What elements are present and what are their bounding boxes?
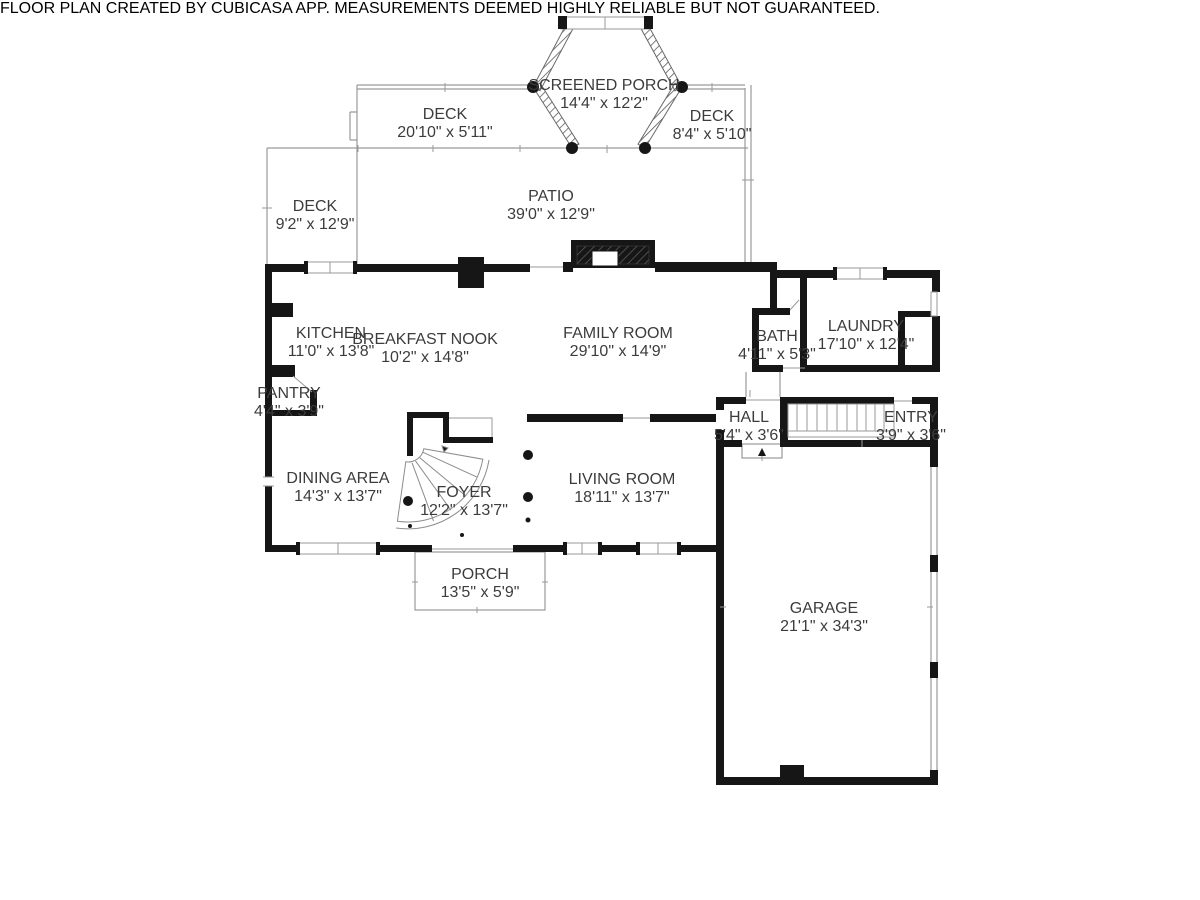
screened-porch-window xyxy=(558,16,653,29)
room-label-dining-area: DINING AREA14'3" x 13'7" xyxy=(286,470,389,506)
room-label-screened-porch: SCREENED PORCH14'4" x 12'2" xyxy=(528,77,679,113)
room-label-entry: ENTRY3'9" x 3'6" xyxy=(876,409,946,445)
room-label-patio: PATIO39'0" x 12'9" xyxy=(507,188,595,224)
stoop-arrow xyxy=(758,448,766,461)
kitchen-window xyxy=(304,261,357,274)
laundry-window xyxy=(833,267,887,280)
room-label-foyer: FOYER12'2" x 13'7" xyxy=(420,484,508,520)
living-window-1 xyxy=(563,542,602,555)
room-label-breakfast-nook: BREAKFAST NOOK10'2" x 14'8" xyxy=(352,331,498,367)
room-label-hall: HALL5'4" x 3'6" xyxy=(714,409,784,445)
living-window-2 xyxy=(636,542,681,555)
floor-plan: SCREENED PORCH14'4" x 12'2" DECK20'10" x… xyxy=(0,0,1200,900)
closet-outlines xyxy=(449,418,492,437)
floor-plan-drawing xyxy=(0,0,1200,900)
dining-window xyxy=(296,542,380,555)
room-label-laundry: LAUNDRY17'10" x 12'4" xyxy=(818,318,915,354)
room-label-living-room: LIVING ROOM18'11" x 13'7" xyxy=(569,471,676,507)
room-label-bath: BATH4'11" x 5'3" xyxy=(738,328,816,364)
room-label-deck-right: DECK8'4" x 5'10" xyxy=(673,108,752,144)
room-label-deck-top: DECK20'10" x 5'11" xyxy=(397,106,492,142)
room-label-pantry: PANTRY4'4" x 3'9" xyxy=(254,385,324,421)
room-label-garage: GARAGE21'1" x 34'3" xyxy=(780,600,868,636)
fireplace xyxy=(571,240,655,268)
room-label-porch: PORCH13'5" x 5'9" xyxy=(441,566,520,602)
room-label-family-room: FAMILY ROOM29'10" x 14'9" xyxy=(563,325,673,361)
room-label-deck-left: DECK9'2" x 12'9" xyxy=(276,198,355,234)
laundry-side-window xyxy=(931,292,937,316)
